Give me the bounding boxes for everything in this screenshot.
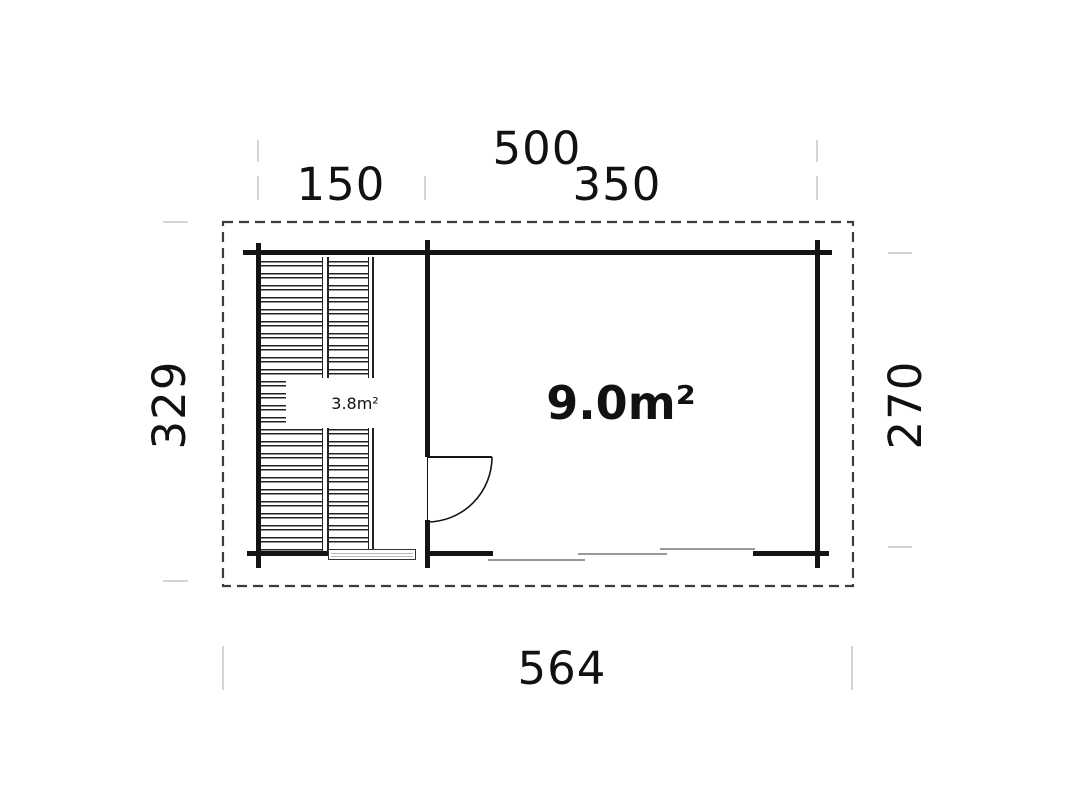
door-leaf (427, 456, 492, 458)
floor-plan: 3.8m² 9.0m² 500 150 350 329 270 564 (0, 0, 1066, 800)
dim-label-right-depth: 270 (881, 345, 931, 465)
threshold-inner-line-1 (331, 553, 413, 554)
partition-wall-upper (425, 240, 430, 457)
sliding-door-line-1 (488, 559, 585, 561)
door-frame-line (427, 457, 429, 520)
dim-label-left-section: 150 (281, 160, 401, 210)
bottom-wall-left-segment (247, 551, 332, 556)
dim-label-left-depth: 329 (145, 345, 195, 465)
dim-label-right-section: 350 (557, 160, 677, 210)
sliding-door-line-2 (578, 553, 667, 555)
bottom-wall-middle-segment (425, 551, 493, 556)
partition-wall-lower (425, 520, 430, 568)
terrace-area-text: 3.8m² (331, 394, 378, 413)
right-wall (815, 240, 820, 568)
sliding-door-line-3 (660, 548, 755, 550)
door-swing-arc (427, 457, 492, 522)
dim-label-overall-bottom: 564 (502, 644, 622, 694)
room-area-label-terrace: 3.8m² (286, 378, 424, 428)
top-wall (243, 250, 832, 255)
bottom-wall-right-segment (753, 551, 829, 556)
threshold-inner-line-2 (331, 556, 413, 557)
terrace-threshold (328, 549, 416, 560)
room-area-label-main: 9.0m² (531, 378, 711, 428)
left-wall (256, 243, 261, 568)
